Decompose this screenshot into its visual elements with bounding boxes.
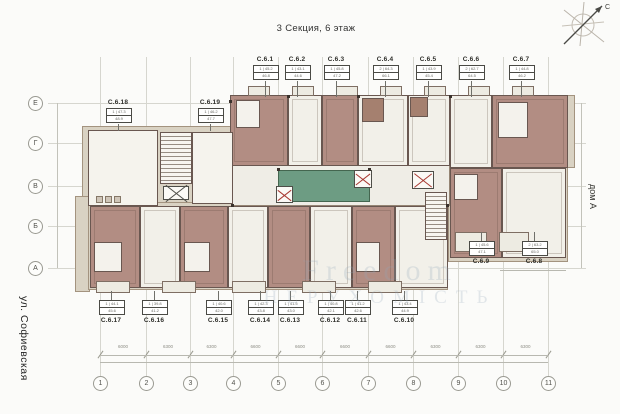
apartment-info-box: 1 | 43.144.6: [285, 65, 311, 80]
apartment-info-box: 2 | 63.265.0: [522, 241, 548, 256]
apartment-info-box: 1 | 41.543.0: [278, 300, 304, 315]
apartment-info-row: 1 | 42.3: [249, 301, 273, 308]
callout-layer: 1 | 45.246.8С.6.11 | 43.144.6С.6.21 | 45…: [0, 0, 620, 414]
callout-leader: [357, 291, 358, 300]
apartment-info-row: 42.1: [319, 308, 343, 314]
apartment-info-row: 46.8: [254, 73, 278, 79]
apartment-label: С.6.1: [257, 56, 274, 63]
apartment-info-box: 1 | 45.647.1: [469, 241, 495, 256]
apartment-label: С.6.3: [328, 56, 345, 63]
apartment-info-row: 1 | 41.5: [279, 301, 303, 308]
apartment-label: С.6.18: [108, 99, 128, 106]
apartment-info-box: 1 | 39.841.2: [142, 300, 168, 315]
apartment-info-box: 2 | 62.764.5: [459, 65, 485, 80]
callout-leader: [154, 291, 155, 300]
apartment-info-row: 1 | 40.8: [319, 301, 343, 308]
apartment-label: С.6.8: [526, 258, 543, 265]
callout-leader: [290, 291, 291, 300]
apartment-info-row: 47.7: [199, 116, 223, 122]
apartment-info-row: 46.2: [510, 73, 534, 79]
apartment-label: С.6.16: [144, 317, 164, 324]
apartment-info-row: 1 | 45.6: [470, 242, 494, 249]
apartment-info-row: 1 | 43.9: [417, 66, 441, 73]
callout-leader: [336, 81, 337, 97]
apartment-label: С.6.10: [394, 317, 414, 324]
apartment-info-row: 65.0: [523, 249, 547, 255]
compass-north-label: С: [605, 4, 610, 11]
apartment-info-row: 47.1: [470, 249, 494, 255]
apartment-info-box: 1 | 40.842.1: [318, 300, 344, 315]
callout-leader: [385, 81, 386, 97]
apartment-info-row: 1 | 47.3: [107, 109, 131, 116]
apartment-label: С.6.13: [280, 317, 300, 324]
apartment-label: С.6.4: [377, 56, 394, 63]
apartment-info-row: 44.9: [393, 308, 417, 314]
apartment-info-row: 47.2: [325, 73, 349, 79]
house-label: дом А: [588, 184, 598, 209]
apartment-info-box: 1 | 45.246.8: [253, 65, 279, 80]
apartment-label: С.6.17: [101, 317, 121, 324]
apartment-label: С.6.7: [513, 56, 530, 63]
callout-leader: [218, 291, 219, 300]
apartment-label: С.6.15: [208, 317, 228, 324]
apartment-label: С.6.12: [320, 317, 340, 324]
apartment-info-box: 1 | 47.348.9: [106, 108, 132, 123]
callout-leader: [210, 124, 211, 131]
apartment-info-row: 1 | 40.6: [207, 301, 231, 308]
apartment-info-row: 1 | 45.8: [325, 66, 349, 73]
apartment-label: С.6.5: [420, 56, 437, 63]
apartment-info-row: 45.6: [100, 308, 124, 314]
apartment-info-row: 2 | 64.3: [374, 66, 398, 73]
compass-icon: С: [558, 0, 616, 50]
apartment-info-box: 1 | 45.847.2: [324, 65, 350, 80]
apartment-info-box: 1 | 40.642.0: [206, 300, 232, 315]
apartment-info-row: 45.4: [417, 73, 441, 79]
callout-leader: [404, 291, 405, 300]
apartment-info-row: 42.6: [346, 308, 370, 314]
apartment-label: С.6.6: [463, 56, 480, 63]
apartment-info-row: 1 | 46.2: [199, 109, 223, 116]
apartment-info-row: 1 | 43.1: [286, 66, 310, 73]
callout-leader: [428, 81, 429, 97]
apartment-info-row: 48.9: [107, 116, 131, 122]
apartment-info-row: 43.8: [249, 308, 273, 314]
apartment-info-row: 1 | 41.2: [346, 301, 370, 308]
apartment-info-row: 41.2: [143, 308, 167, 314]
apartment-info-row: 1 | 45.2: [254, 66, 278, 73]
floor-plan-sheet: 1234567891011ЕГВБА6000630063006600660066…: [0, 0, 620, 414]
apartment-info-box: 1 | 44.145.6: [99, 300, 125, 315]
apartment-info-box: 1 | 43.444.9: [392, 300, 418, 315]
apartment-info-box: 2 | 64.366.1: [373, 65, 399, 80]
apartment-info-box: 1 | 43.945.4: [416, 65, 442, 80]
callout-leader: [521, 81, 522, 97]
apartment-info-row: 42.0: [207, 308, 231, 314]
callout-leader: [534, 232, 535, 241]
sheet-title: 3 Секция, 6 этаж: [236, 23, 396, 34]
apartment-info-row: 1 | 43.4: [393, 301, 417, 308]
apartment-info-box: 1 | 46.247.7: [198, 108, 224, 123]
apartment-label: С.6.9: [473, 258, 490, 265]
callout-leader: [330, 291, 331, 300]
apartment-info-box: 1 | 41.242.6: [345, 300, 371, 315]
callout-leader: [471, 81, 472, 97]
apartment-info-row: 64.5: [460, 73, 484, 79]
apartment-label: С.6.14: [250, 317, 270, 324]
apartment-label: С.6.2: [289, 56, 306, 63]
apartment-info-row: 43.0: [279, 308, 303, 314]
apartment-info-row: 1 | 39.8: [143, 301, 167, 308]
apartment-info-row: 66.1: [374, 73, 398, 79]
street-label: ул. Софиевская: [18, 296, 30, 381]
callout-leader: [260, 291, 261, 300]
apartment-info-row: 2 | 63.2: [523, 242, 547, 249]
apartment-info-row: 44.6: [286, 73, 310, 79]
callout-leader: [481, 232, 482, 241]
callout-leader: [111, 291, 112, 300]
apartment-info-box: 1 | 42.343.8: [248, 300, 274, 315]
callout-leader: [297, 81, 298, 97]
callout-leader: [265, 81, 266, 97]
callout-leader: [118, 124, 119, 131]
apartment-info-row: 1 | 44.8: [510, 66, 534, 73]
apartment-info-row: 1 | 44.1: [100, 301, 124, 308]
apartment-info-row: 2 | 62.7: [460, 66, 484, 73]
apartment-label: С.6.19: [200, 99, 220, 106]
apartment-label: С.6.11: [347, 317, 367, 324]
apartment-info-box: 1 | 44.846.2: [509, 65, 535, 80]
